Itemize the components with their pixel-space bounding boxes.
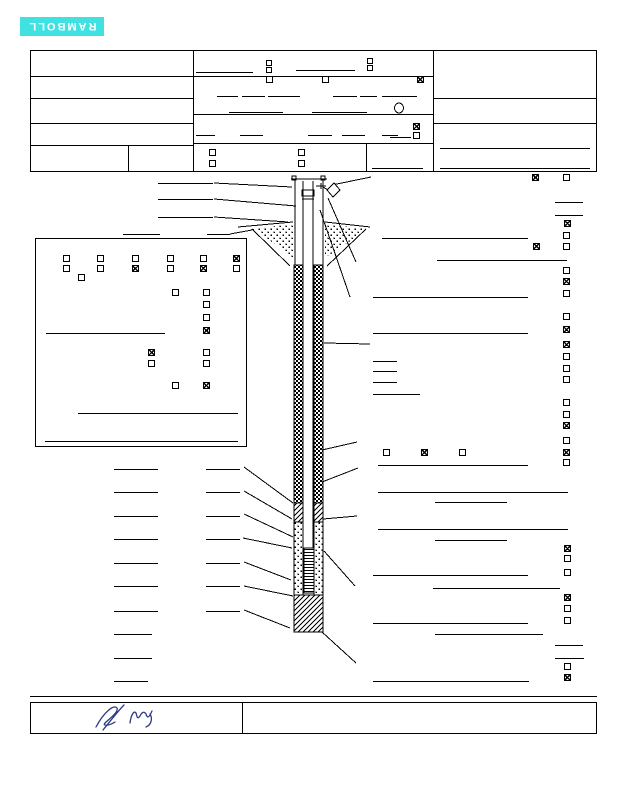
blank-line	[158, 199, 213, 200]
blank-line	[30, 696, 597, 697]
header-mid-sub-divider	[366, 143, 367, 172]
checkbox[interactable]	[78, 274, 85, 281]
blank-line	[206, 516, 240, 517]
checkbox[interactable]	[233, 265, 240, 272]
blank-line	[242, 96, 265, 97]
blank-line	[312, 112, 367, 113]
checkbox[interactable]	[563, 411, 570, 418]
checkbox[interactable]	[148, 360, 155, 367]
checkbox[interactable]	[167, 265, 174, 272]
checkbox-checked[interactable]	[563, 326, 570, 333]
checkbox[interactable]	[209, 160, 216, 167]
blank-line	[333, 96, 357, 97]
casing-bolt-right	[321, 176, 325, 180]
checkbox[interactable]	[564, 569, 571, 576]
blank-line	[206, 539, 240, 540]
blank-line	[372, 168, 423, 169]
checkbox-checked[interactable]	[563, 422, 570, 429]
trench-line-left	[252, 229, 290, 266]
header-left-sub-divider	[128, 145, 129, 171]
blank-line	[30, 98, 193, 99]
checkbox[interactable]	[563, 459, 570, 466]
blank-line	[114, 492, 158, 493]
checkbox[interactable]	[563, 243, 570, 250]
header-outer-box	[30, 50, 597, 172]
blank-line	[114, 469, 158, 470]
leader-line	[230, 230, 252, 234]
checkbox[interactable]	[563, 365, 570, 372]
blank-line	[114, 681, 148, 682]
blank-line	[158, 183, 213, 184]
blank-line	[196, 135, 215, 136]
checkbox[interactable]	[132, 255, 139, 262]
checkbox-checked[interactable]	[421, 449, 428, 456]
blank-line	[378, 492, 568, 493]
checkbox-checked[interactable]	[417, 76, 424, 83]
blank-line	[373, 371, 397, 372]
checkbox-checked[interactable]	[563, 341, 570, 348]
checkbox[interactable]	[564, 555, 571, 562]
blank-line	[373, 681, 529, 682]
checkbox-checked[interactable]	[203, 382, 210, 389]
leader-line	[322, 632, 356, 663]
checkbox-checked[interactable]	[564, 674, 571, 681]
checkbox[interactable]	[298, 149, 305, 156]
checkbox-checked[interactable]	[148, 349, 155, 356]
blank-line	[158, 217, 213, 218]
blank-line	[78, 413, 238, 414]
checkbox[interactable]	[200, 255, 207, 262]
checkbox[interactable]	[203, 349, 210, 356]
header-divider-left	[193, 50, 194, 172]
checkbox[interactable]	[563, 232, 570, 239]
blank-line	[114, 586, 158, 587]
checkbox[interactable]	[266, 60, 272, 66]
blank-line	[382, 135, 398, 136]
blank-line	[46, 333, 165, 334]
blank-line	[433, 588, 560, 589]
checkbox[interactable]	[563, 313, 570, 320]
blank-line	[382, 238, 528, 239]
checkbox[interactable]	[63, 255, 70, 262]
blank-line	[193, 114, 433, 115]
checkbox[interactable]	[172, 289, 179, 296]
backfill-stipple-left	[252, 224, 293, 258]
blank-line	[308, 135, 332, 136]
checkbox[interactable]	[563, 353, 570, 360]
blank-line	[373, 361, 397, 362]
blank-line	[373, 333, 528, 334]
blank-line	[373, 297, 528, 298]
leader-line	[214, 199, 296, 206]
ground-line-right	[325, 222, 370, 227]
checkbox[interactable]	[383, 449, 390, 456]
leader-line	[244, 562, 291, 580]
checkbox-checked[interactable]	[563, 449, 570, 456]
blank-line	[268, 96, 300, 97]
checkbox[interactable]	[266, 67, 272, 73]
blank-line	[193, 76, 433, 77]
lock-hasp	[323, 187, 328, 190]
leader-line	[243, 538, 292, 548]
ground-line-left	[238, 222, 293, 227]
blank-line	[206, 492, 240, 493]
blank-line	[373, 382, 397, 383]
checkbox[interactable]	[167, 255, 174, 262]
blank-line	[296, 70, 355, 71]
leader-line	[324, 551, 355, 586]
blank-line	[114, 634, 152, 635]
blank-line	[206, 586, 240, 587]
leader-line	[320, 210, 350, 297]
checkbox[interactable]	[298, 160, 305, 167]
bentonite-seal-left	[294, 503, 303, 522]
blank-line	[390, 137, 411, 138]
leader-line	[324, 343, 370, 344]
blank-line	[217, 96, 238, 97]
blank-line	[114, 516, 158, 517]
blank-line	[196, 72, 253, 73]
blank-line	[114, 611, 158, 612]
checkbox-checked[interactable]	[132, 265, 139, 272]
blank-line	[30, 145, 193, 146]
blank-line	[435, 634, 543, 635]
blank-line	[433, 98, 597, 99]
checkbox[interactable]	[563, 267, 570, 274]
leader-line	[214, 217, 288, 222]
blank-line	[440, 168, 590, 169]
blank-line	[30, 123, 193, 124]
checkbox[interactable]	[563, 399, 570, 406]
checkbox[interactable]	[322, 76, 329, 83]
checkbox[interactable]	[97, 255, 104, 262]
padlock-icon	[327, 183, 340, 197]
checkbox[interactable]	[209, 149, 216, 156]
checkbox-checked[interactable]	[564, 220, 571, 227]
blank-line	[114, 563, 158, 564]
blank-line	[373, 575, 528, 576]
checkbox[interactable]	[63, 265, 70, 272]
blank-line	[382, 96, 417, 97]
leader-line	[244, 514, 293, 537]
bentonite-seal-right	[314, 503, 323, 522]
blank-line	[229, 112, 283, 113]
sand-pack-right	[314, 522, 323, 595]
blank-line	[435, 540, 507, 541]
blank-line	[378, 529, 568, 530]
backfill-stipple-right	[325, 224, 366, 258]
checkbox[interactable]	[563, 290, 570, 297]
blank-line	[360, 96, 377, 97]
riser-cap	[302, 190, 314, 196]
blank-line	[437, 260, 567, 261]
blank-line	[114, 539, 158, 540]
checkbox[interactable]	[563, 437, 570, 444]
blank-line	[378, 465, 528, 466]
checkbox-checked[interactable]	[563, 278, 570, 285]
blank-line	[114, 658, 152, 659]
blank-line	[206, 563, 240, 564]
header-divider-right	[433, 50, 434, 172]
bottom-plug	[294, 595, 323, 632]
checkbox[interactable]	[459, 449, 466, 456]
checkbox[interactable]	[367, 58, 373, 64]
leader-line	[323, 516, 357, 519]
ramboll-logo: RAMBOLL	[20, 17, 104, 36]
leader-line	[244, 467, 293, 503]
leader-line	[322, 468, 358, 482]
blank-line	[555, 202, 583, 203]
grout-annulus-right	[314, 265, 323, 503]
checkbox-checked[interactable]	[564, 594, 571, 601]
blank-line	[440, 148, 590, 149]
blank-line	[207, 234, 230, 235]
checkbox[interactable]	[266, 76, 273, 83]
well-screen	[304, 548, 314, 593]
leader-line	[244, 586, 293, 596]
sand-pack-left	[294, 522, 303, 595]
checkbox[interactable]	[564, 605, 571, 612]
checkbox[interactable]	[172, 382, 179, 389]
blank-line	[193, 143, 433, 144]
grout-annulus-left	[294, 265, 303, 503]
checkbox-checked[interactable]	[203, 327, 210, 334]
blank-line	[555, 658, 584, 659]
checkbox[interactable]	[563, 174, 570, 181]
blank-line	[240, 135, 263, 136]
well-log-document-page: RAMBOLL	[0, 0, 618, 800]
checkbox[interactable]	[203, 314, 210, 321]
trench-line-right	[327, 229, 366, 266]
signature-box	[30, 702, 597, 734]
checkbox-checked[interactable]	[564, 545, 571, 552]
blank-line	[433, 123, 597, 124]
checkbox[interactable]	[564, 617, 571, 624]
blank-line	[45, 441, 238, 442]
checkbox-checked[interactable]	[532, 174, 539, 181]
leader-line	[322, 442, 357, 450]
checkbox-checked[interactable]	[533, 243, 540, 250]
checkbox[interactable]	[203, 289, 210, 296]
checkbox[interactable]	[413, 132, 420, 139]
leader-line	[328, 198, 356, 262]
leader-line	[244, 610, 290, 628]
blank-line	[373, 623, 528, 624]
blank-line	[435, 502, 507, 503]
leader-line	[332, 177, 371, 185]
checkbox[interactable]	[367, 65, 373, 71]
blank-line	[206, 611, 240, 612]
casing-bolt-left	[292, 176, 296, 180]
blank-line	[342, 135, 365, 136]
checkbox[interactable]	[97, 265, 104, 272]
blank-line	[555, 645, 583, 646]
checkbox[interactable]	[203, 360, 210, 367]
checkbox[interactable]	[203, 301, 210, 308]
leader-line	[244, 491, 292, 519]
blank-line	[373, 394, 420, 395]
checkbox[interactable]	[563, 376, 570, 383]
checkbox-checked[interactable]	[413, 123, 420, 130]
blank-line	[206, 469, 240, 470]
checkbox[interactable]	[564, 663, 571, 670]
blank-line	[30, 76, 193, 77]
signature-divider	[242, 702, 243, 734]
blank-line	[123, 234, 160, 235]
leader-line	[214, 183, 292, 187]
checkbox-checked[interactable]	[233, 255, 240, 262]
checkbox-checked[interactable]	[200, 265, 207, 272]
blank-line	[555, 215, 583, 216]
